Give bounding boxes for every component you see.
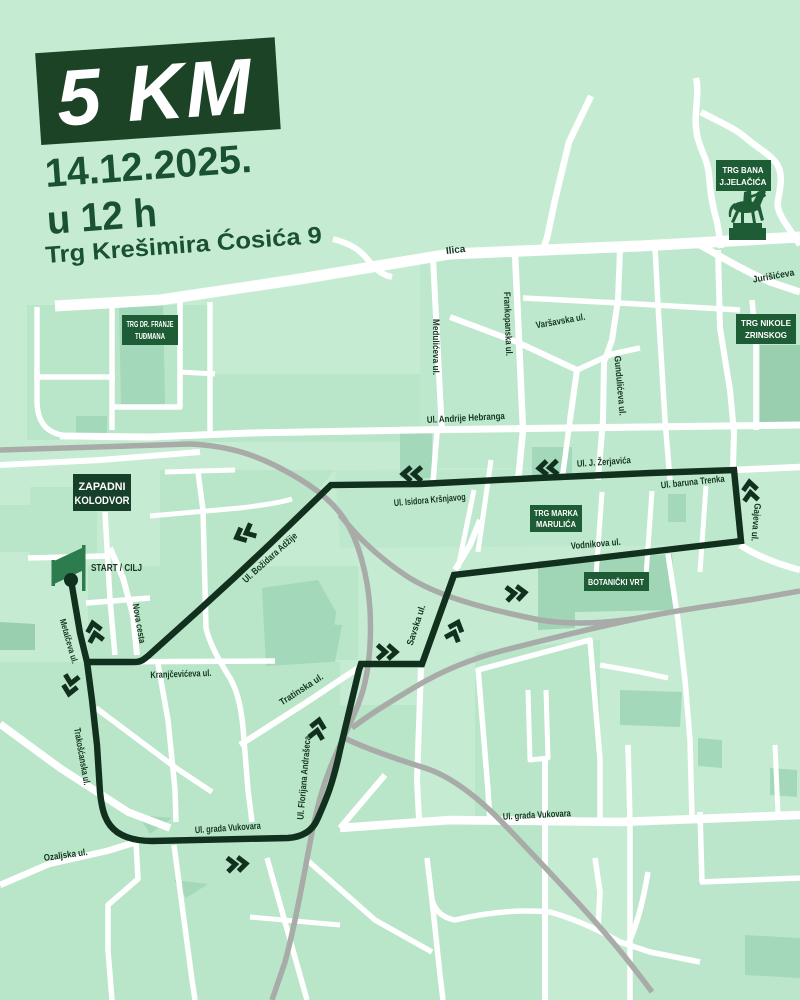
svg-text:ZAPADNI: ZAPADNI bbox=[79, 481, 126, 493]
svg-text:TRG NIKOLE: TRG NIKOLE bbox=[741, 318, 791, 328]
svg-text:START / CILJ: START / CILJ bbox=[91, 562, 142, 574]
svg-text:TRG MARKA: TRG MARKA bbox=[534, 509, 578, 518]
svg-text:TRG DR. FRANJE: TRG DR. FRANJE bbox=[127, 320, 174, 329]
svg-text:TUĐMANA: TUĐMANA bbox=[135, 332, 165, 341]
svg-text:Frankopanska ul.: Frankopanska ul. bbox=[501, 292, 514, 356]
svg-text:Medulićeva ul.: Medulićeva ul. bbox=[430, 319, 441, 375]
svg-text:5 KM: 5 KM bbox=[54, 41, 256, 143]
svg-text:KOLODVOR: KOLODVOR bbox=[75, 495, 130, 507]
svg-text:TRG BANA: TRG BANA bbox=[723, 165, 764, 175]
svg-text:ZRINSKOG: ZRINSKOG bbox=[745, 330, 787, 340]
svg-text:J.JELAČIĆA: J.JELAČIĆA bbox=[720, 176, 767, 187]
svg-text:Kranjčevićeva ul.: Kranjčevićeva ul. bbox=[150, 668, 211, 681]
svg-text:BOTANIČKI VRT: BOTANIČKI VRT bbox=[588, 576, 645, 587]
svg-text:MARULIĆA: MARULIĆA bbox=[536, 520, 576, 529]
